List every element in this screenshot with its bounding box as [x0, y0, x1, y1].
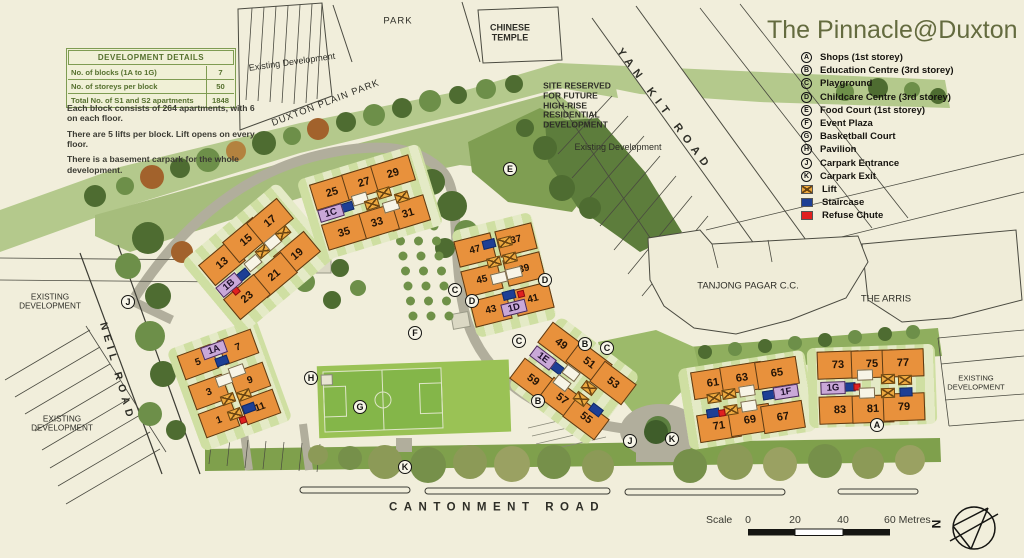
map-marker-D: D — [465, 294, 479, 308]
tree-icon — [435, 252, 444, 261]
map-marker-K: K — [398, 460, 412, 474]
legend-item-label: Education Centre (3rd storey) — [820, 65, 954, 76]
legend-item-label: Lift — [822, 184, 837, 195]
table-row-value: 7 — [206, 66, 234, 79]
legend-marker-icon: H — [801, 144, 812, 155]
area-label: Existing Development — [574, 142, 661, 152]
area-label: CANTONMENT ROAD — [389, 501, 605, 514]
legend-item-label: Staircase — [822, 197, 864, 208]
lift-icon — [898, 375, 912, 385]
service-box — [857, 369, 873, 381]
tree-icon — [549, 175, 575, 201]
staircase-icon — [899, 387, 912, 396]
table-row-value: 50 — [206, 80, 234, 93]
tree-icon — [414, 237, 423, 246]
tree-icon — [145, 283, 171, 309]
map-marker-J: J — [623, 434, 637, 448]
tree-icon — [132, 222, 164, 254]
legend: AShops (1st storey)BEducation Centre (3r… — [801, 52, 954, 223]
tree-icon — [419, 267, 428, 276]
tree-icon — [308, 445, 328, 465]
tree-icon — [505, 75, 523, 93]
map-marker-D: D — [538, 273, 552, 287]
note-text: Each block consists of 264 apartments, w… — [67, 103, 259, 124]
map-marker-C: C — [512, 334, 526, 348]
tree-icon — [399, 252, 408, 261]
tree-icon — [494, 446, 530, 482]
staircase-icon — [801, 198, 813, 207]
map-marker-H: H — [304, 371, 318, 385]
tree-icon — [363, 104, 385, 126]
tree-icon — [427, 312, 436, 321]
tree-icon — [331, 259, 349, 277]
lift-icon — [881, 388, 895, 398]
tree-icon — [437, 267, 446, 276]
legend-marker-icon: J — [801, 158, 812, 169]
area-label: THE ARRIS — [861, 295, 911, 306]
scale-tick-0: 0 — [745, 514, 751, 526]
map-marker-G: G — [353, 400, 367, 414]
legend-item: Refuse Chute — [801, 210, 954, 221]
legend-item: BEducation Centre (3rd storey) — [801, 65, 954, 76]
block-label-1G: 1G — [820, 381, 845, 395]
legend-marker-icon: F — [801, 118, 812, 129]
tree-icon — [307, 118, 329, 140]
development-details-table: DEVELOPMENT DETAILS No. of blocks (1A to… — [66, 48, 236, 108]
area-label: PARK — [383, 17, 412, 28]
tree-icon — [449, 86, 467, 104]
scale-tick-20: 20 — [789, 514, 801, 526]
legend-marker-icon: D — [801, 92, 812, 103]
area-label: CHINESE TEMPLE — [490, 23, 530, 44]
refuse-icon — [801, 211, 813, 220]
map-title: The Pinnacle@Duxton — [767, 16, 1018, 45]
tree-icon — [808, 444, 842, 478]
tree-icon — [537, 445, 571, 479]
tree-icon — [906, 325, 920, 339]
development-notes: Each block consists of 264 apartments, w… — [67, 103, 259, 180]
tree-icon — [673, 449, 707, 483]
legend-item: JCarpark Entrance — [801, 158, 954, 169]
tree-icon — [533, 136, 557, 160]
map-marker-C: C — [600, 341, 614, 355]
tree-icon — [392, 98, 412, 118]
tree-icon — [445, 312, 454, 321]
tree-icon — [582, 450, 614, 482]
tree-icon — [717, 444, 753, 480]
tree-icon — [763, 447, 797, 481]
tree-icon — [818, 333, 832, 347]
legend-item-label: Food Court (1st storey) — [820, 105, 925, 116]
map-marker-A: A — [870, 418, 884, 432]
tree-icon — [166, 420, 186, 440]
tree-icon — [283, 127, 301, 145]
tree-icon — [135, 321, 165, 351]
tree-icon — [84, 185, 106, 207]
legend-item: FEvent Plaza — [801, 118, 954, 129]
tree-icon — [758, 339, 772, 353]
tree-icon — [406, 297, 415, 306]
legend-marker-icon: K — [801, 171, 812, 182]
scale-label: Scale — [706, 514, 732, 526]
legend-item-label: Shops (1st storey) — [820, 52, 903, 63]
north-label: N — [929, 520, 943, 529]
tree-icon — [852, 447, 884, 479]
area-label: EXISTING DEVELOPMENT — [19, 293, 81, 312]
legend-item: GBasketball Court — [801, 131, 954, 142]
tree-icon — [401, 267, 410, 276]
map-marker-B: B — [531, 394, 545, 408]
area-label: EXISTING DEVELOPMENT — [947, 374, 1004, 391]
legend-item-label: Childcare Centre (3rd storey) — [820, 92, 951, 103]
note-text: There are 5 lifts per block. Lift opens … — [67, 129, 259, 150]
legend-item: HPavilion — [801, 144, 954, 155]
details-header: DEVELOPMENT DETAILS — [68, 50, 234, 65]
tree-icon — [350, 280, 366, 296]
tree-icon — [419, 90, 441, 112]
tree-icon — [698, 345, 712, 359]
tree-icon — [410, 447, 446, 483]
tree-icon — [878, 327, 892, 341]
legend-item-label: Event Plaza — [820, 118, 873, 129]
site-plan: The Pinnacle@Duxton AShops (1st storey)B… — [0, 0, 1024, 558]
table-row-label: No. of blocks (1A to 1G) — [68, 66, 206, 79]
tree-icon — [432, 237, 441, 246]
tree-icon — [115, 253, 141, 279]
basketball-court — [317, 360, 511, 439]
scale-bar — [748, 529, 890, 536]
legend-item-label: Refuse Chute — [822, 210, 883, 221]
tree-icon — [728, 342, 742, 356]
tree-icon — [516, 119, 534, 137]
legend-item-label: Playground — [820, 78, 872, 89]
legend-marker-icon: C — [801, 78, 812, 89]
tree-icon — [422, 282, 431, 291]
legend-item: AShops (1st storey) — [801, 52, 954, 63]
tree-icon — [442, 297, 451, 306]
tree-icon — [138, 402, 162, 426]
tree-icon — [453, 445, 487, 479]
scale-tick-60: 60 Metres — [884, 514, 931, 526]
legend-item: DChildcare Centre (3rd storey) — [801, 92, 954, 103]
lift-icon — [881, 374, 895, 384]
legend-item: CPlayground — [801, 78, 954, 89]
legend-item-label: Basketball Court — [820, 131, 896, 142]
legend-item-label: Pavilion — [820, 144, 856, 155]
note-text: There is a basement carpark for the whol… — [67, 154, 259, 175]
table-row: No. of storeys per block50 — [68, 79, 234, 93]
refuse-chute-icon — [718, 409, 726, 417]
legend-marker-icon: E — [801, 105, 812, 116]
area-label: EXISTING DEVELOPMENT — [31, 415, 93, 434]
area-label: SITE RESERVED FOR FUTURE HIGH-RISE RESID… — [543, 82, 611, 131]
map-marker-E: E — [503, 162, 517, 176]
legend-marker-icon: G — [801, 131, 812, 142]
tree-icon — [848, 330, 862, 344]
map-marker-F: F — [408, 326, 422, 340]
table-row: No. of blocks (1A to 1G)7 — [68, 66, 234, 79]
tree-icon — [338, 446, 362, 470]
tree-icon — [409, 312, 418, 321]
tree-icon — [788, 336, 802, 350]
tree-icon — [476, 79, 496, 99]
lift-icon — [801, 185, 813, 194]
legend-marker-icon: B — [801, 65, 812, 76]
legend-item-label: Carpark Entrance — [820, 158, 899, 169]
legend-item: Lift — [801, 184, 954, 195]
tree-icon — [895, 445, 925, 475]
map-marker-C: C — [448, 283, 462, 297]
map-marker-B: B — [578, 337, 592, 351]
legend-item: Staircase — [801, 197, 954, 208]
table-row-label: No. of storeys per block — [68, 80, 206, 93]
service-box — [859, 387, 875, 399]
tree-icon — [579, 197, 601, 219]
tree-icon — [417, 252, 426, 261]
tree-icon — [323, 291, 341, 309]
legend-item: EFood Court (1st storey) — [801, 105, 954, 116]
tree-icon — [404, 282, 413, 291]
tree-icon — [368, 445, 402, 479]
tree-icon — [424, 297, 433, 306]
legend-marker-icon: A — [801, 52, 812, 63]
area-label: TANJONG PAGAR C.C. — [697, 282, 799, 293]
map-marker-J: J — [121, 295, 135, 309]
tree-icon — [336, 112, 356, 132]
legend-item-label: Carpark Exit — [820, 171, 876, 182]
legend-item: KCarpark Exit — [801, 171, 954, 182]
scale-tick-40: 40 — [837, 514, 849, 526]
map-marker-K: K — [665, 432, 679, 446]
